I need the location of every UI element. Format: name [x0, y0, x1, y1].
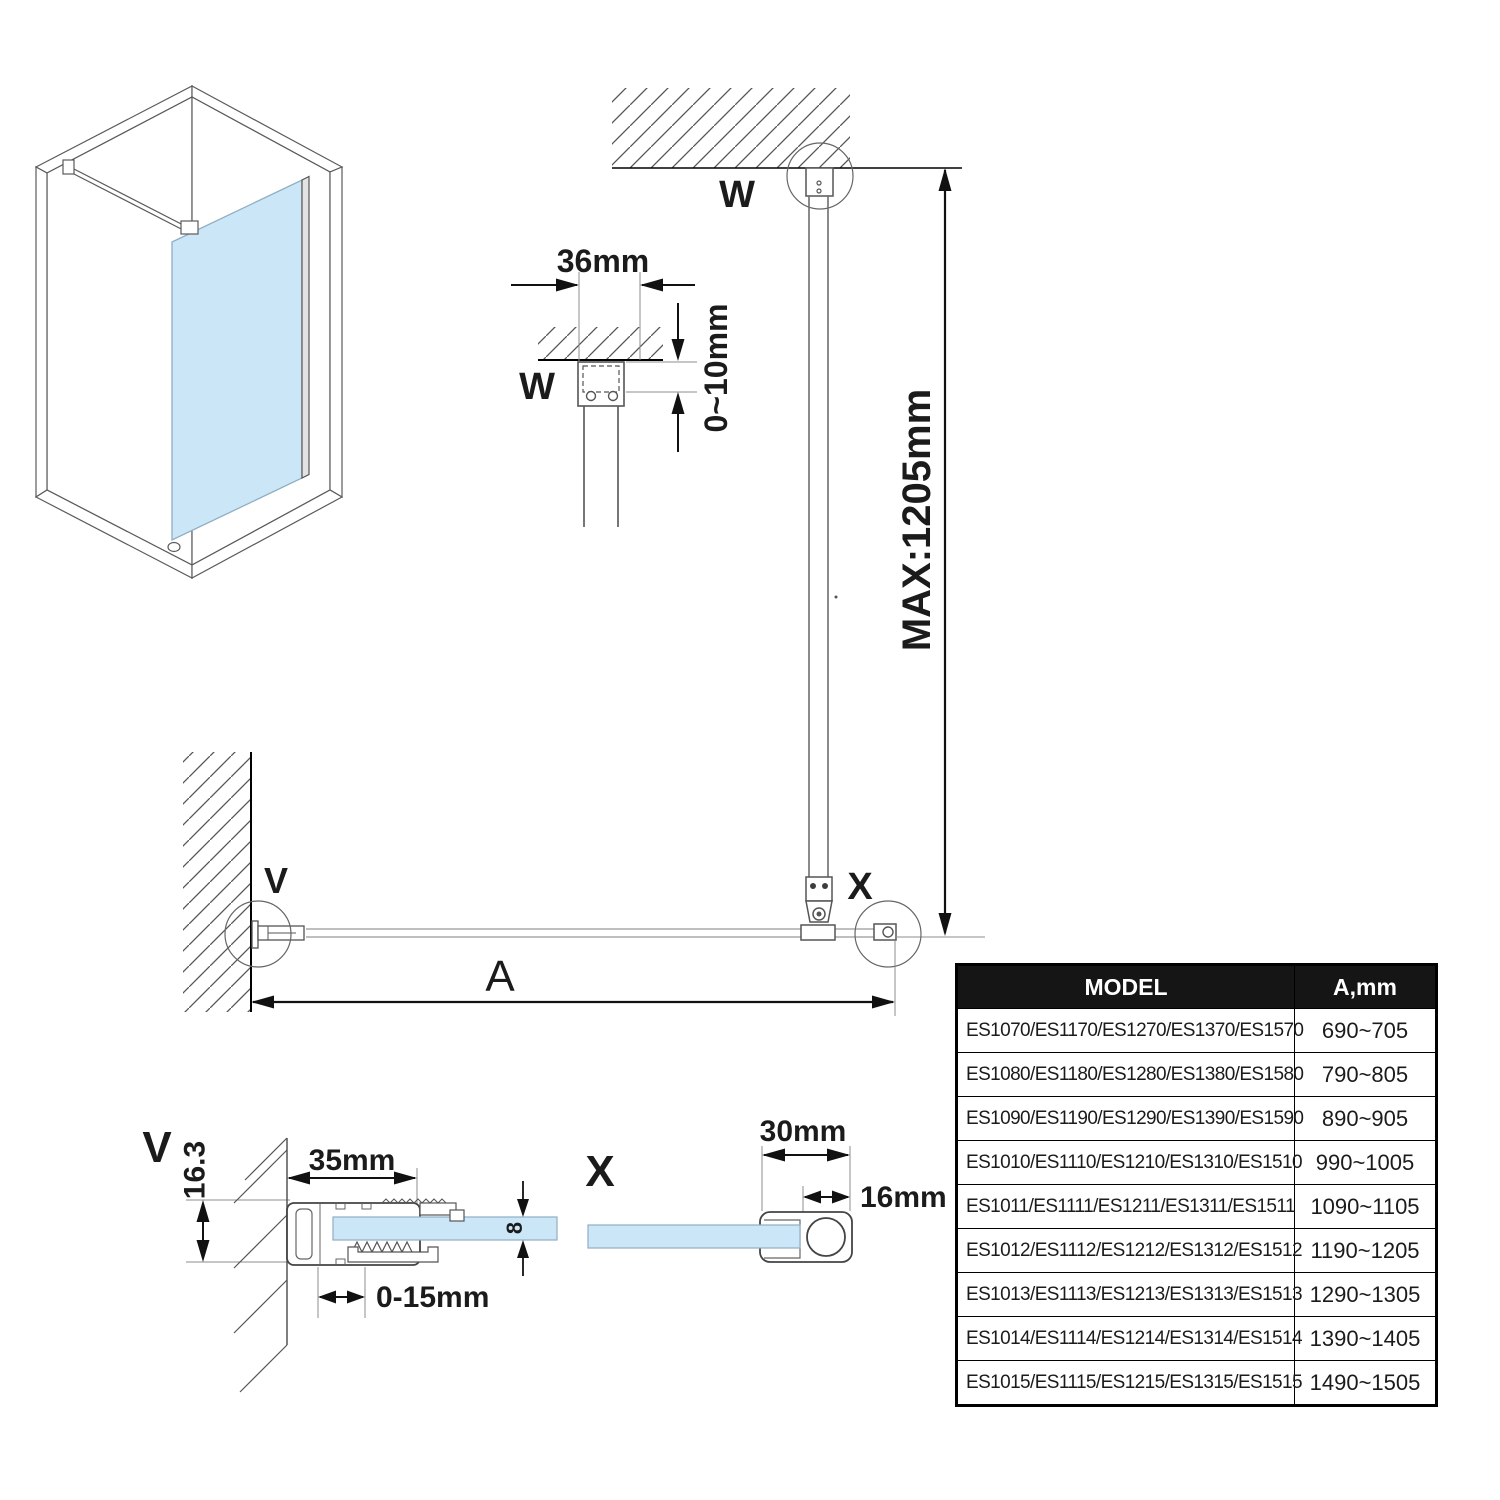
- detail-w-label: W: [519, 366, 555, 408]
- end-profile-tube: [807, 1218, 845, 1256]
- ceiling-gap-dim: 0~10mm: [698, 304, 734, 433]
- a-range-cell: 1290~1305: [1295, 1273, 1437, 1317]
- v-callout-label: V: [264, 860, 288, 901]
- wall-profile-plan: [252, 921, 258, 948]
- a-range-cell: 1390~1405: [1295, 1317, 1437, 1361]
- support-bar: [809, 196, 828, 877]
- profile-slot: [296, 1209, 312, 1259]
- a-range-cell: 1190~1205: [1295, 1229, 1437, 1273]
- a-range-cell: 990~1005: [1295, 1141, 1437, 1185]
- model-cell: ES1010/ES1110/ES1210/ES1310/ES1510: [957, 1141, 1295, 1185]
- ceiling-mount: [806, 168, 833, 196]
- a-range-cell: 890~905: [1295, 1097, 1437, 1141]
- table-header-row: MODEL A,mm: [957, 965, 1437, 1009]
- table-row: ES1012/ES1112/ES1212/ES1312/ES1512 1190~…: [957, 1229, 1437, 1273]
- a-range-cell: 1490~1505: [1295, 1361, 1437, 1406]
- table-row: ES1015/ES1115/ES1215/ES1315/ES1515 1490~…: [957, 1361, 1437, 1406]
- table-row: ES1090/ES1190/ES1290/ES1390/ES1590 890~9…: [957, 1097, 1437, 1141]
- glass-floor-foot: [168, 543, 180, 552]
- profile-width-dim: 35mm: [309, 1144, 396, 1177]
- adjust-range-dim: 0-15mm: [376, 1281, 489, 1314]
- bar-lower-bracket: [806, 877, 832, 901]
- model-table-body: ES1070/ES1170/ES1270/ES1370/ES1570 690~7…: [957, 1009, 1437, 1406]
- spec-sheet-page: 36mm W 0~10mm W: [0, 0, 1500, 1500]
- glass-wall-profile: [302, 177, 309, 479]
- a-range-cell: 790~805: [1295, 1053, 1437, 1097]
- ceiling-bracket-body: [578, 362, 624, 406]
- end-profile-detail-x: X 30mm 16mm: [585, 1115, 946, 1262]
- model-cell: ES1070/ES1170/ES1270/ES1370/ES1570: [957, 1009, 1295, 1053]
- table-row: ES1013/ES1113/ES1213/ES1313/ES1513 1290~…: [957, 1273, 1437, 1317]
- width-a-dim: A: [485, 952, 515, 1001]
- bracket-screw: [587, 392, 596, 401]
- x-callout-label: X: [847, 866, 873, 908]
- table-row: ES1080/ES1180/ES1280/ES1380/ES1580 790~8…: [957, 1053, 1437, 1097]
- model-table: MODEL A,mm ES1070/ES1170/ES1270/ES1370/E…: [955, 963, 1435, 1407]
- table-row: ES1011/ES1111/ES1211/ES1311/ES1511 1090~…: [957, 1185, 1437, 1229]
- model-cell: ES1090/ES1190/ES1290/ES1390/ES1590: [957, 1097, 1295, 1141]
- model-cell: ES1011/ES1111/ES1211/ES1311/ES1511: [957, 1185, 1295, 1229]
- glass-section: [588, 1225, 800, 1248]
- end-profile-width-dim: 30mm: [760, 1115, 847, 1148]
- profile-offset-dim: 16.3: [179, 1141, 212, 1199]
- end-profile-depth-dim: 16mm: [860, 1181, 947, 1214]
- a-range-cell: 690~705: [1295, 1009, 1437, 1053]
- model-cell: ES1013/ES1113/ES1213/ES1313/ES1513: [957, 1273, 1295, 1317]
- w-callout-label: W: [719, 174, 755, 216]
- model-cell: ES1080/ES1180/ES1280/ES1380/ES1580: [957, 1053, 1295, 1097]
- table-row: ES1070/ES1170/ES1270/ES1370/ES1570 690~7…: [957, 1009, 1437, 1053]
- detail-v-label: V: [142, 1123, 172, 1172]
- ceiling-bracket-detail-w: 36mm W 0~10mm: [511, 243, 734, 527]
- table-row: ES1014/ES1114/ES1214/ES1314/ES1514 1390~…: [957, 1317, 1437, 1361]
- a-range-cell: 1090~1105: [1295, 1185, 1437, 1229]
- profile-top-hook: [450, 1210, 464, 1221]
- a-column-header: A,mm: [1295, 965, 1437, 1009]
- model-cell: ES1012/ES1112/ES1212/ES1312/ES1512: [957, 1229, 1295, 1273]
- wall-hatch-lines: [234, 1138, 287, 1392]
- ceiling-hatch: [538, 327, 663, 360]
- bracket-screw: [609, 392, 618, 401]
- glass-thickness-dim: 8: [502, 1222, 527, 1234]
- wall-profile-detail-v: V 16.3 35mm 8 0-15mm: [142, 1123, 557, 1392]
- glass-clamp-block: [801, 925, 835, 940]
- isometric-view: [36, 86, 342, 578]
- bar-wall-bracket: [63, 160, 74, 174]
- detail-x-label: X: [585, 1147, 614, 1196]
- max-height-dim: MAX:1205mm: [895, 389, 939, 651]
- ceiling-hatch: [612, 88, 850, 168]
- wall-hatch: [183, 752, 251, 1012]
- model-cell: ES1014/ES1114/ES1214/ES1314/ES1514: [957, 1317, 1295, 1361]
- bar-glass-clamp: [181, 221, 198, 234]
- model-cell: ES1015/ES1115/ES1215/ES1315/ES1515: [957, 1361, 1295, 1406]
- left-wall-outer-edge: [36, 167, 47, 497]
- model-column-header: MODEL: [957, 965, 1295, 1009]
- right-wall-outer-edge: [330, 167, 342, 497]
- bracket-width-dim: 36mm: [557, 243, 650, 279]
- table-row: ES1010/ES1110/ES1210/ES1310/ES1510 990~1…: [957, 1141, 1437, 1185]
